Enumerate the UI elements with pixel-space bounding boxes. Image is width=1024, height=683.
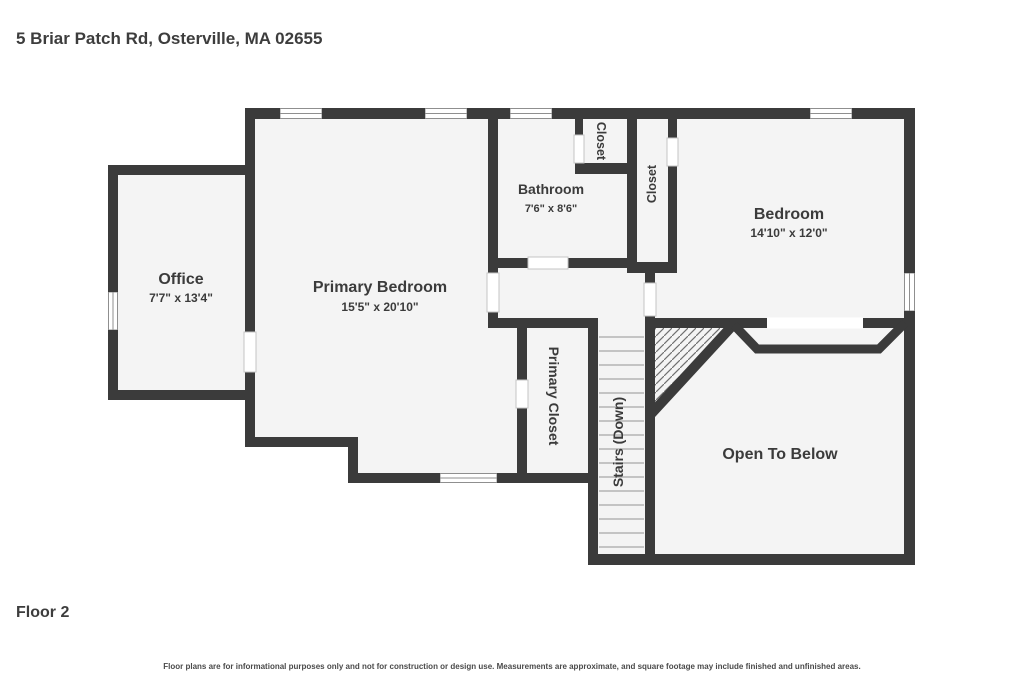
bathroom-dimensions: 7'6" x 8'6" (525, 203, 577, 215)
wall-cap (421, 108, 425, 119)
window (435, 473, 502, 483)
wall-segment (588, 318, 598, 565)
wall-cap (497, 473, 502, 483)
room-fills (118, 119, 905, 554)
wall-segment (588, 554, 915, 565)
bedroom-door-opening (644, 283, 656, 316)
window (506, 108, 556, 119)
bedroom-wall-opening (767, 318, 863, 329)
office-door-opening (244, 332, 256, 372)
closet-bedroom-door-opening (667, 138, 678, 166)
wall-segment (108, 165, 118, 400)
floor-plan-svg: Office 7'7" x 13'4" Primary Bedroom 15'5… (0, 0, 1024, 683)
bathroom-door-opening (528, 257, 568, 269)
wall-segment (645, 328, 655, 555)
window (421, 108, 471, 119)
stairs-label: Stairs (Down) (610, 397, 626, 487)
wall-segment (627, 119, 637, 273)
open-to-below-label: Open To Below (722, 446, 838, 463)
wall-cap (506, 108, 510, 119)
closet-bedroom-label: Closet (645, 164, 659, 203)
window (108, 287, 118, 335)
closet-bathroom-label: Closet (594, 122, 608, 161)
office-label: Office (158, 271, 203, 288)
wall-segment (245, 437, 358, 447)
wall-cap (904, 311, 915, 316)
wall-segment (488, 318, 598, 328)
window (904, 268, 915, 316)
floor-plan-page: { "header": { "title": "5 Briar Patch Rd… (0, 0, 1024, 683)
wall-cap (108, 287, 118, 292)
office-dimensions: 7'7" x 13'4" (149, 291, 213, 305)
window (276, 108, 326, 119)
wall-segment (108, 165, 255, 175)
primary-bedroom-label: Primary Bedroom (313, 279, 447, 296)
wall-cap (108, 330, 118, 335)
wall-cap (322, 108, 326, 119)
wall-cap (435, 473, 440, 483)
wall-cap (806, 108, 810, 119)
primary-closet-label: Primary Closet (546, 347, 562, 446)
wall-cap (904, 268, 915, 273)
floor-number-label: Floor 2 (16, 604, 69, 622)
bathroom-label: Bathroom (518, 181, 584, 197)
wall-cap (852, 108, 856, 119)
wall-cap (552, 108, 556, 119)
window (806, 108, 856, 119)
wall-segment (904, 108, 915, 565)
closet-bathroom-door-opening (574, 135, 584, 163)
disclaimer-text: Floor plans are for informational purpos… (0, 662, 1024, 671)
wall-cap (276, 108, 280, 119)
primary-bedroom-dimensions: 15'5" x 20'10" (341, 300, 418, 314)
bedroom-label: Bedroom (754, 206, 824, 223)
wall-segment (575, 119, 583, 136)
bedroom-dimensions: 14'10" x 12'0" (750, 226, 827, 240)
wall-cap (467, 108, 471, 119)
wall-segment (108, 390, 255, 400)
primary-bedroom-door-opening (487, 273, 499, 312)
primary-closet-door-opening (516, 380, 528, 408)
